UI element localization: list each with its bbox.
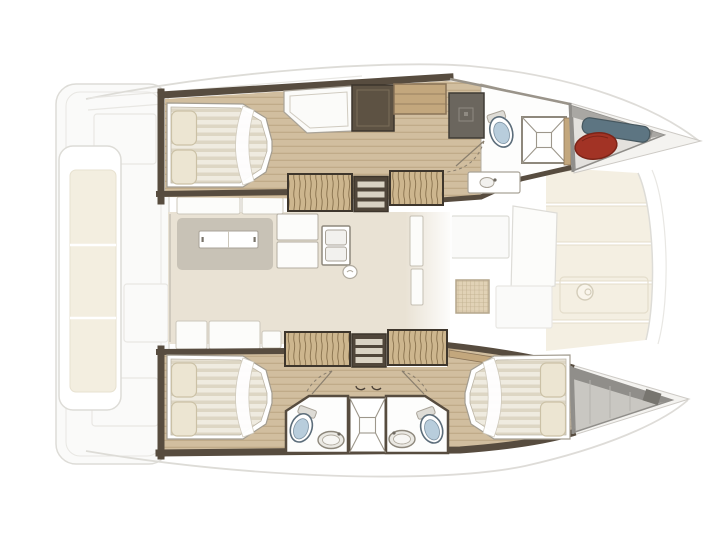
settee-seat: [177, 197, 240, 214]
fwd-cockpit-door-panel: [511, 206, 557, 292]
deck-fitting-icon: [577, 284, 593, 300]
forward-cockpit: [448, 206, 557, 345]
starboard-staircase: [285, 330, 447, 367]
pillow: [172, 150, 197, 184]
tall-cabinet: [410, 216, 423, 266]
aft-cockpit-bench: [59, 146, 121, 410]
shared-shower-cubicle: [350, 398, 386, 453]
salon: [168, 197, 452, 349]
bathroom-sink: [318, 432, 344, 449]
shower-cubicle: [522, 117, 571, 165]
starboard-aft-bed: [167, 355, 272, 439]
wardrobe-shelf: [394, 84, 446, 114]
foredeck-panels: [544, 167, 666, 352]
fwd-cockpit-panel: [496, 286, 552, 328]
tall-cabinet: [411, 269, 423, 305]
settee-seat: [176, 321, 207, 349]
galley-faucet: [343, 266, 357, 279]
fwd-cockpit-bench: [451, 216, 509, 258]
catamaran-floor-plan: Catamaran yacht interior layout floor pl…: [0, 0, 723, 542]
settee-seat: [242, 197, 283, 214]
galley-counter: [277, 242, 318, 268]
trampoline-mesh: [456, 280, 489, 313]
wardrobe-cabinet: [352, 85, 394, 131]
double-bed: [167, 103, 272, 187]
dark-cabinet: [449, 93, 484, 138]
settee-seat: [209, 321, 260, 349]
vanity-sink: [468, 172, 520, 193]
galley-double-sink: [322, 226, 350, 265]
bench-cushions: [70, 170, 116, 392]
cockpit-storage-box: [124, 284, 168, 342]
pillow: [172, 111, 197, 145]
floor-plan-canvas: Catamaran yacht interior layout floor pl…: [0, 0, 723, 542]
dining-table: [177, 218, 273, 270]
foredeck-outer-edge-line: [652, 170, 666, 344]
bathroom-sink: [389, 431, 415, 448]
port-staircase: [288, 171, 443, 212]
settee-seat: [262, 331, 281, 348]
starboard-hull: [159, 330, 689, 456]
starboard-bow-locker: [573, 368, 672, 432]
starboard-forward-bed: [465, 355, 570, 439]
galley-counter: [277, 214, 318, 240]
